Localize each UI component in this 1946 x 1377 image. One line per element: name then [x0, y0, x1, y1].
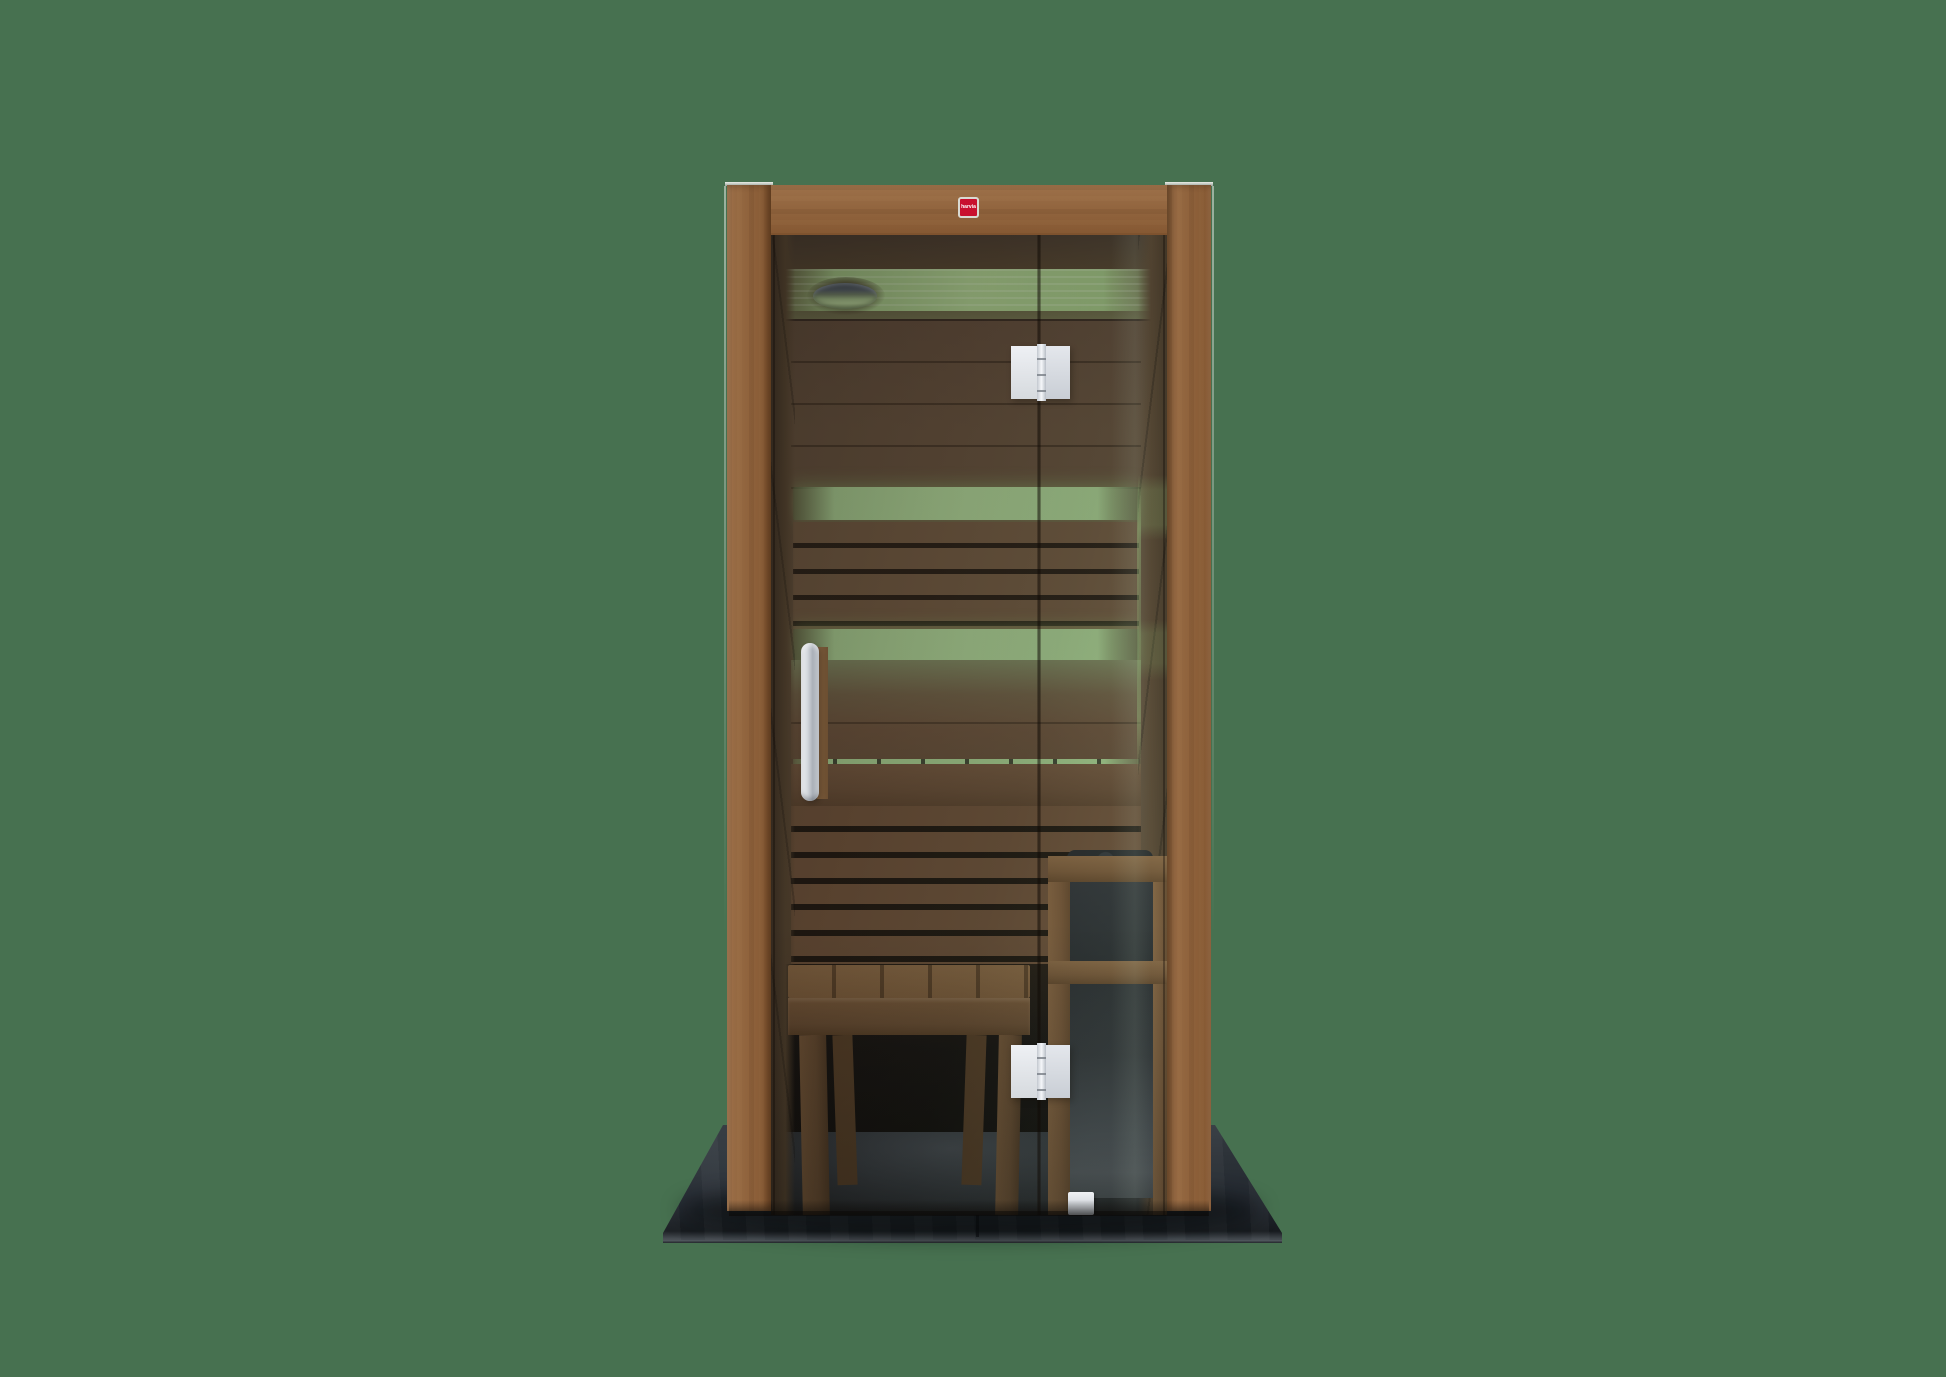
side-glass-edge-right	[1212, 186, 1214, 1066]
brand-logo-text: harvia	[961, 205, 976, 210]
side-glass-edge-left	[724, 186, 726, 1066]
glass-tint	[771, 235, 1167, 1215]
hinge-barrel	[1037, 344, 1046, 401]
door-hinge-top	[1011, 346, 1070, 399]
door-handle	[801, 643, 819, 801]
door-hinge-bottom	[1011, 1045, 1070, 1098]
hinge-leaf-left	[1011, 1045, 1037, 1098]
glass-reflection	[1111, 235, 1151, 1215]
hinge-leaf-right	[1046, 346, 1070, 399]
sauna-cabin: harvia	[727, 182, 1211, 1220]
frame-post-left	[727, 185, 771, 1211]
hinge-leaf-right	[1046, 1045, 1070, 1098]
fixed-panel-edge	[1163, 235, 1165, 1215]
base-front-edge	[663, 1240, 1282, 1243]
frame-post-right	[1167, 185, 1211, 1211]
brand-logo-plate: harvia	[958, 197, 979, 218]
door-glass-edge	[773, 235, 775, 1215]
hinge-leaf-left	[1011, 346, 1037, 399]
scene-background: harvia	[0, 0, 1946, 1377]
hinge-barrel	[1037, 1043, 1046, 1100]
glass-front	[771, 235, 1167, 1215]
cabin-plinth-shadow	[729, 1200, 1209, 1216]
